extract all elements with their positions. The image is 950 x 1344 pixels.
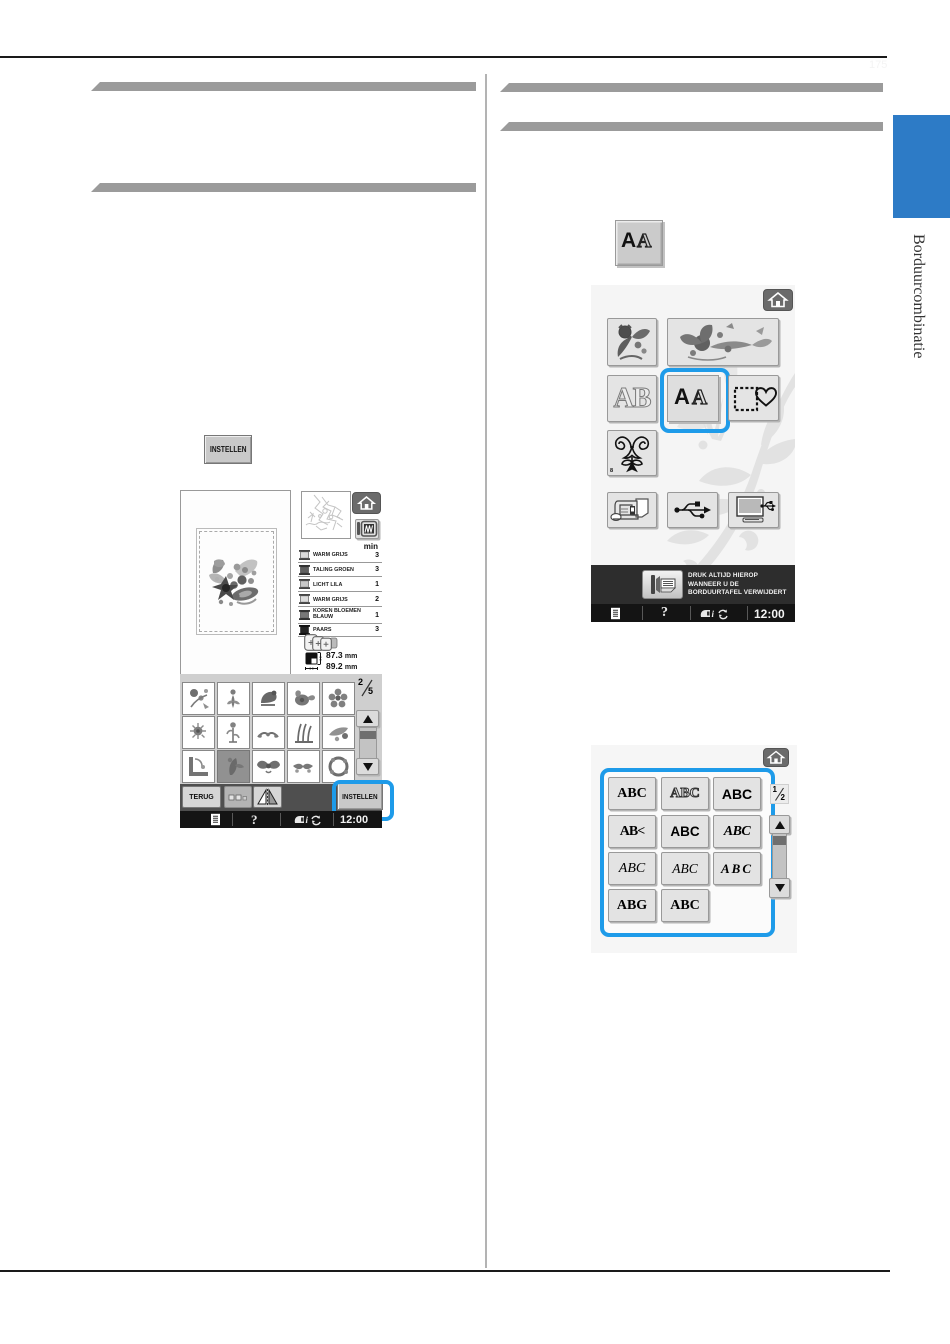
svg-text:i: i xyxy=(306,815,309,825)
svg-text:i: i xyxy=(712,609,715,619)
